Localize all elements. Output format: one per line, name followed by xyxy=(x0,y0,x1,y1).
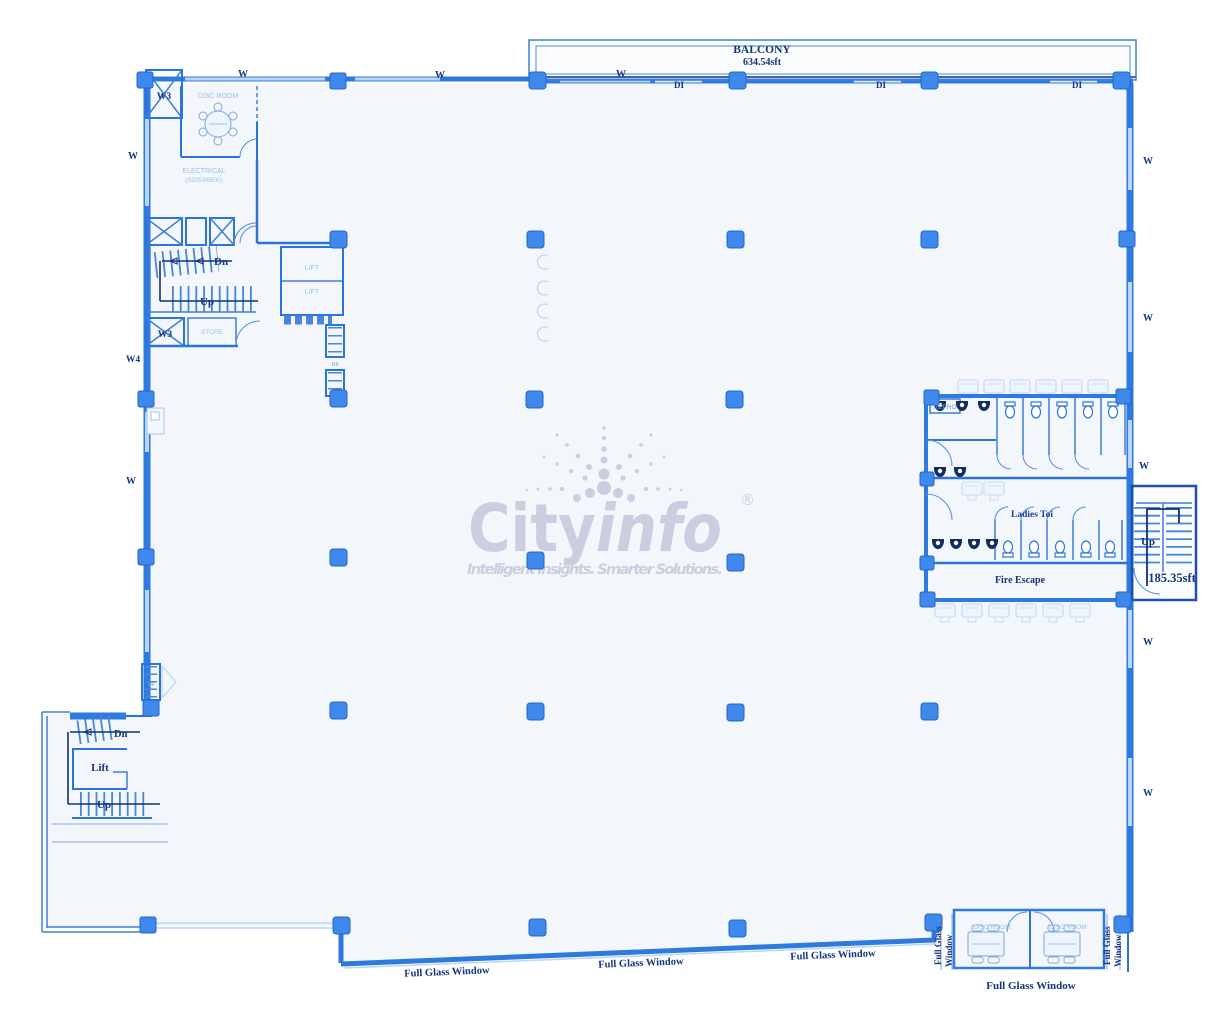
watermark-registered: ® xyxy=(740,491,755,509)
wall-marker-di: DI xyxy=(876,80,886,90)
column xyxy=(921,231,938,248)
floor-plan-drawing: Cityinfo ® Intelligent Insights. Smarter… xyxy=(0,0,1230,1025)
ladies-toi-label: Ladies Toi xyxy=(1011,510,1053,520)
full-glass-window-label-vertical: Window xyxy=(1113,934,1123,967)
wall-marker-w: W xyxy=(1143,156,1153,167)
balcony-label: BALCONY xyxy=(733,44,791,56)
column xyxy=(527,231,544,248)
balcony-area: 634.54sft xyxy=(743,57,782,68)
up-label: Up xyxy=(97,799,111,811)
watermark-brand: Cityinfo xyxy=(468,490,722,567)
full-glass-window-label-vertical: Full Glass xyxy=(933,926,943,965)
disc-room-label: DISC ROOM xyxy=(973,924,1011,931)
column xyxy=(330,231,347,248)
dn-label: Dn xyxy=(114,729,128,740)
column xyxy=(920,556,934,570)
wall-marker-w3: W3 xyxy=(157,92,172,102)
wall-marker-w4: W4 xyxy=(126,355,141,365)
column xyxy=(140,917,156,933)
column xyxy=(138,391,154,407)
full-glass-window-label-vertical: Full Glass xyxy=(1102,926,1112,965)
electrical-label: ELECTRICAL xyxy=(182,168,225,175)
column xyxy=(330,702,347,719)
up-label: Up xyxy=(200,296,214,308)
column xyxy=(330,549,347,566)
wall-marker-di: DI xyxy=(1072,80,1082,90)
column xyxy=(137,72,153,88)
lift-label: Lift xyxy=(91,762,109,774)
column xyxy=(726,391,743,408)
lift-label: LIFT xyxy=(305,265,320,272)
column xyxy=(920,472,934,486)
wall-marker-w: W xyxy=(616,69,626,80)
column xyxy=(1116,592,1131,607)
column xyxy=(143,700,159,716)
wall-marker-w: W xyxy=(435,70,445,81)
wall-marker-w3: W3 xyxy=(158,330,173,340)
up-label: Up xyxy=(1141,536,1155,548)
column xyxy=(330,73,346,89)
wall-marker-w: W xyxy=(238,69,248,80)
column xyxy=(729,920,746,937)
stair-area-label: 185.35sft xyxy=(1148,571,1196,585)
column xyxy=(921,72,938,89)
column xyxy=(727,231,744,248)
wall-marker-w: W xyxy=(1139,461,1149,472)
column xyxy=(527,552,544,569)
d6-label: D6 xyxy=(331,362,338,368)
column xyxy=(529,72,546,89)
full-glass-window-label: Full Glass Window xyxy=(404,965,490,980)
bottom-left-extension-floor xyxy=(47,714,150,928)
column xyxy=(1113,72,1130,89)
watermark-tagline: Intelligent Insights. Smarter Solutions. xyxy=(467,562,723,578)
column xyxy=(529,919,546,936)
column xyxy=(727,704,744,721)
wall-marker-di: DI xyxy=(674,80,684,90)
column xyxy=(1116,389,1131,404)
column xyxy=(921,703,938,720)
column xyxy=(1119,231,1135,247)
disc-room-label: DISC ROOM xyxy=(1049,924,1087,931)
electrical-size: (5325X6500) xyxy=(185,177,223,184)
full-glass-window-label: Full Glass Window xyxy=(790,948,876,963)
column xyxy=(920,592,935,607)
lift-label: LIFT xyxy=(305,289,320,296)
fire-escape-label: Fire Escape xyxy=(995,575,1046,586)
dn-label: Dn xyxy=(214,256,228,268)
floor-plan-page: Cityinfo ® Intelligent Insights. Smarter… xyxy=(0,0,1230,1025)
d6-label: D6 xyxy=(147,682,154,688)
column xyxy=(924,390,939,405)
full-glass-window-label: Full Glass Window xyxy=(986,980,1076,992)
repro-label: REPRO xyxy=(933,404,956,411)
wall-marker-w: W xyxy=(126,476,136,487)
wall-marker-w: W xyxy=(1143,313,1153,324)
disc-room-label: DISC ROOM xyxy=(198,93,239,100)
store-label: STORE xyxy=(201,329,224,336)
column xyxy=(1114,916,1131,933)
full-glass-window-label: Full Glass Window xyxy=(598,956,684,971)
wall-marker-w: W xyxy=(1143,788,1153,799)
column xyxy=(138,549,154,565)
column xyxy=(526,391,543,408)
wall-marker-w: W xyxy=(1143,637,1153,648)
full-glass-window-label-vertical: Window xyxy=(944,934,954,967)
wall-marker-w: W xyxy=(128,151,138,162)
column xyxy=(729,72,746,89)
column xyxy=(330,390,347,407)
column xyxy=(333,917,350,934)
column xyxy=(527,703,544,720)
column xyxy=(727,554,744,571)
